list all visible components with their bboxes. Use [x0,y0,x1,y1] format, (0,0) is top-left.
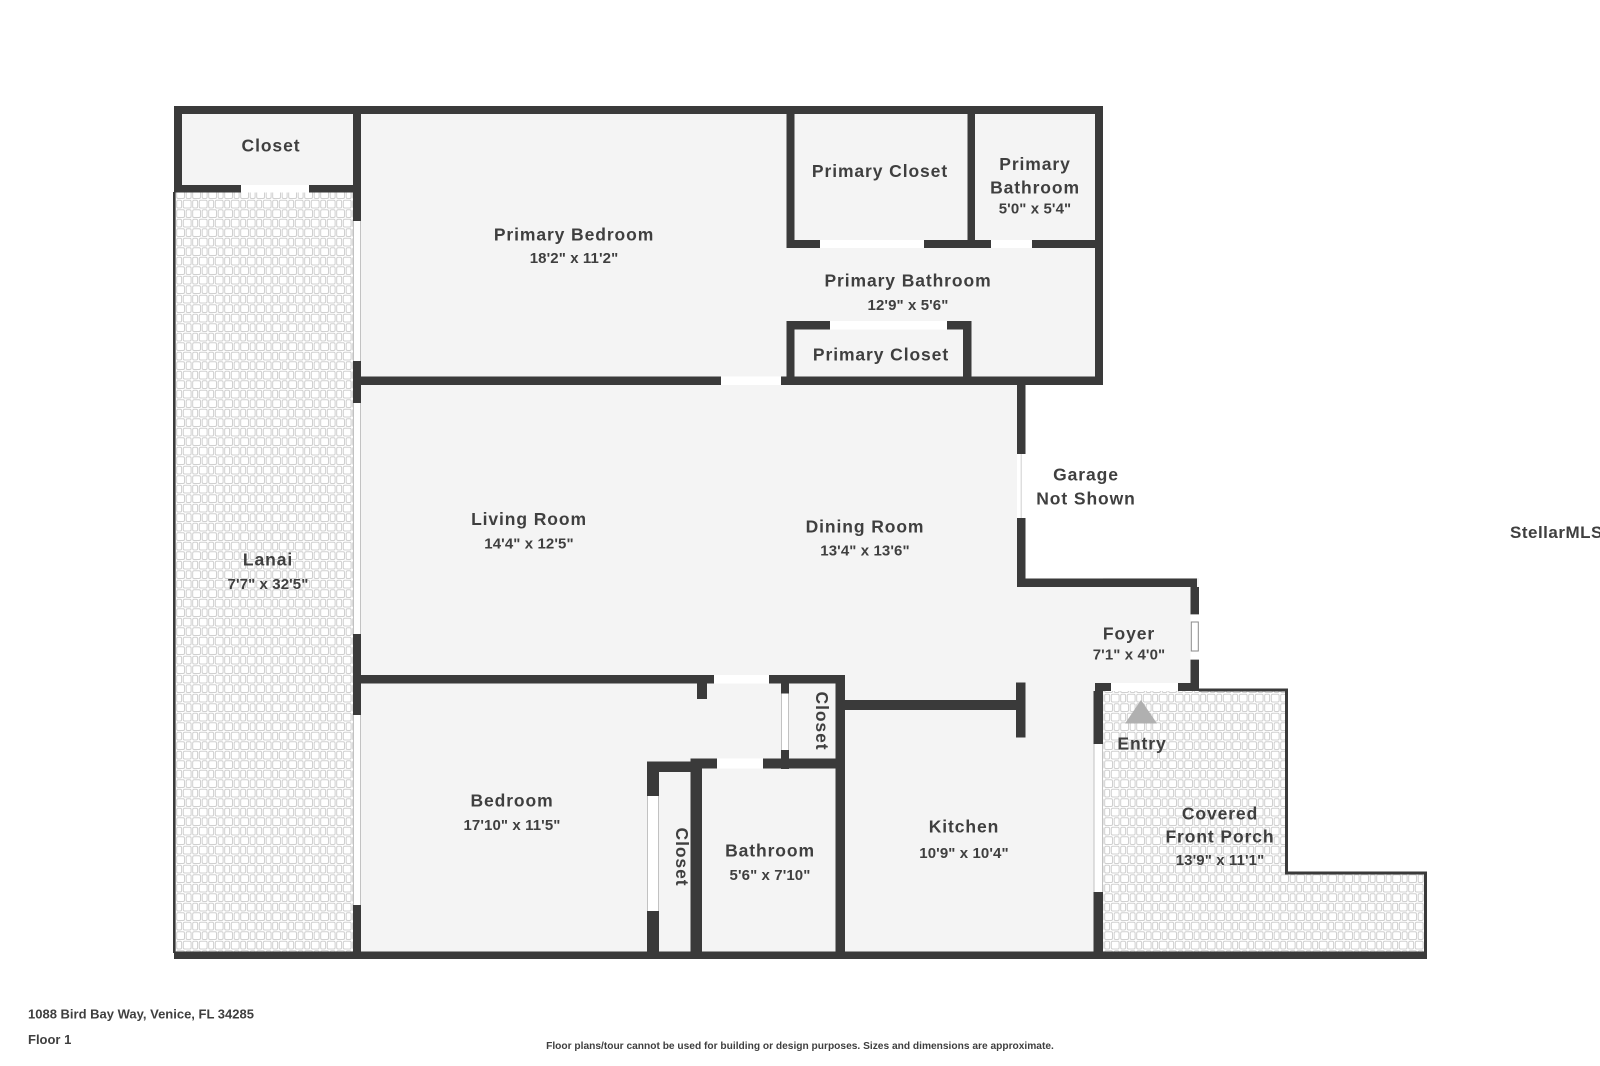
svg-text:13'4" x 13'6": 13'4" x 13'6" [820,543,909,560]
svg-text:Primary Closet: Primary Closet [812,161,948,181]
svg-text:14'4" x 12'5": 14'4" x 12'5" [484,536,573,553]
svg-text:Garage: Garage [1053,465,1119,485]
svg-text:1088 Bird Bay Way, Venice, FL: 1088 Bird Bay Way, Venice, FL 34285 [28,1007,254,1022]
svg-text:Floor plans/tour cannot be use: Floor plans/tour cannot be used for buil… [546,1041,1054,1052]
svg-text:Bathroom: Bathroom [725,841,815,861]
svg-text:10'9" x 10'4": 10'9" x 10'4" [919,845,1008,862]
svg-text:Foyer: Foyer [1103,624,1155,644]
svg-text:Entry: Entry [1117,734,1166,754]
svg-text:Closet: Closet [242,136,301,156]
svg-text:StellarMLS: StellarMLS [1510,523,1600,542]
svg-text:12'9" x 5'6": 12'9" x 5'6" [868,297,949,314]
svg-text:Dining Room: Dining Room [806,517,925,537]
svg-text:Bathroom: Bathroom [990,178,1080,198]
svg-text:5'0" x 5'4": 5'0" x 5'4" [999,201,1072,218]
svg-text:Floor 1: Floor 1 [28,1032,71,1047]
svg-text:Primary Bathroom: Primary Bathroom [824,271,991,291]
svg-text:Covered: Covered [1182,804,1258,824]
svg-text:Closet: Closet [812,692,832,751]
svg-text:Not Shown: Not Shown [1036,489,1135,509]
svg-text:Closet: Closet [672,828,692,887]
svg-text:Lanai: Lanai [243,550,293,570]
svg-text:17'10" x 11'5": 17'10" x 11'5" [463,817,560,834]
svg-text:7'1" x 4'0": 7'1" x 4'0" [1093,647,1166,664]
svg-text:Primary: Primary [999,154,1070,174]
svg-text:Kitchen: Kitchen [929,817,999,837]
svg-text:18'2" x 11'2": 18'2" x 11'2" [530,250,619,267]
svg-text:Bedroom: Bedroom [470,791,553,811]
svg-text:7'7" x 32'5": 7'7" x 32'5" [228,576,309,593]
svg-text:Primary Closet: Primary Closet [813,345,949,365]
svg-text:Front Porch: Front Porch [1165,827,1274,847]
svg-text:13'9" x 11'1": 13'9" x 11'1" [1176,852,1265,869]
svg-text:Primary Bedroom: Primary Bedroom [494,225,654,245]
svg-text:5'6" x 7'10": 5'6" x 7'10" [730,867,811,884]
svg-text:Living Room: Living Room [471,509,587,529]
